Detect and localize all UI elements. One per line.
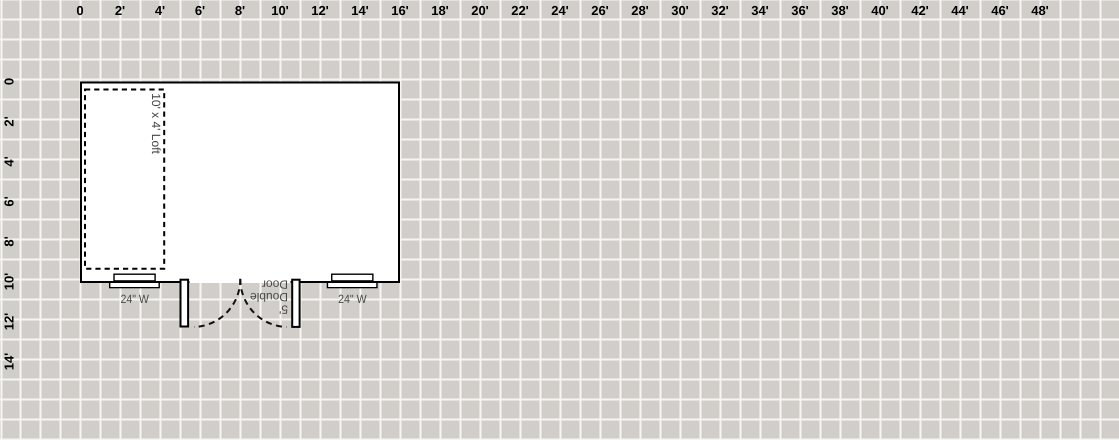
svg-text:18': 18' xyxy=(431,3,449,18)
svg-text:24" W: 24" W xyxy=(338,292,367,306)
svg-text:6': 6' xyxy=(2,196,17,206)
svg-text:4': 4' xyxy=(155,3,165,18)
svg-text:12': 12' xyxy=(2,313,17,331)
svg-text:4': 4' xyxy=(2,156,17,166)
svg-text:22': 22' xyxy=(511,3,529,18)
svg-text:2': 2' xyxy=(115,3,125,18)
svg-text:8': 8' xyxy=(2,236,17,246)
svg-text:44': 44' xyxy=(951,3,969,18)
svg-text:2': 2' xyxy=(2,116,17,126)
svg-text:42': 42' xyxy=(911,3,929,18)
svg-text:0: 0 xyxy=(2,78,17,85)
svg-text:30': 30' xyxy=(671,3,689,18)
svg-text:48': 48' xyxy=(1031,3,1049,18)
svg-text:20': 20' xyxy=(471,3,489,18)
svg-text:32': 32' xyxy=(711,3,729,18)
svg-text:0: 0 xyxy=(76,3,83,18)
svg-text:38': 38' xyxy=(831,3,849,18)
svg-text:24': 24' xyxy=(551,3,569,18)
svg-text:16': 16' xyxy=(391,3,409,18)
svg-text:28': 28' xyxy=(631,3,649,18)
svg-text:36': 36' xyxy=(791,3,809,18)
svg-text:26': 26' xyxy=(591,3,609,18)
svg-text:12': 12' xyxy=(311,3,329,18)
svg-text:10' x 4' Loft: 10' x 4' Loft xyxy=(149,93,163,154)
svg-text:40': 40' xyxy=(871,3,889,18)
svg-text:46': 46' xyxy=(991,3,1009,18)
svg-text:34': 34' xyxy=(751,3,769,18)
svg-text:8': 8' xyxy=(235,3,245,18)
svg-text:6': 6' xyxy=(195,3,205,18)
svg-text:24" W: 24" W xyxy=(120,292,149,306)
svg-text:14': 14' xyxy=(351,3,369,18)
svg-text:10': 10' xyxy=(271,3,289,18)
svg-text:14': 14' xyxy=(2,353,17,371)
svg-text:10': 10' xyxy=(2,273,17,291)
